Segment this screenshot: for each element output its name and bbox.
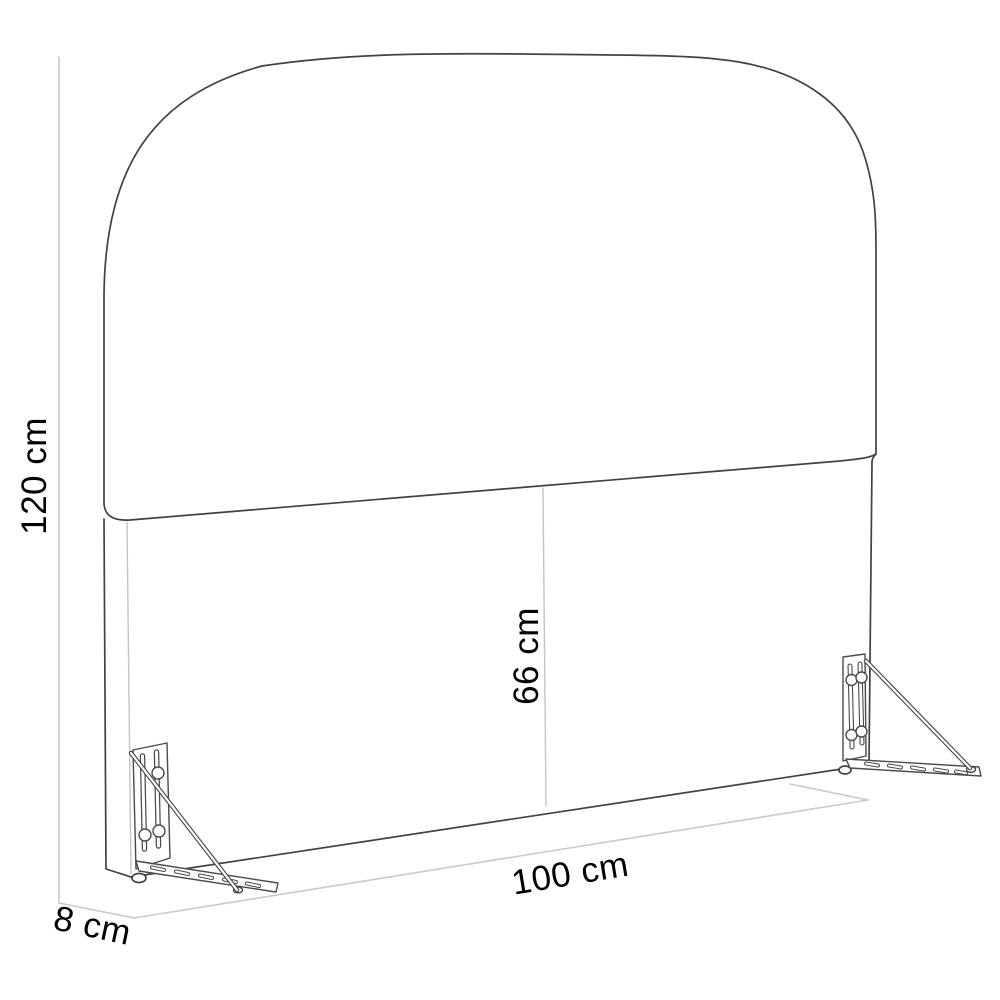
width-dimension-label: 100 cm (509, 845, 632, 903)
headboard-dimension-diagram: 120 cm 66 cm 100 cm 8 cm (0, 0, 1000, 1000)
headboard (104, 54, 876, 883)
panel-height-dimension-label: 66 cm (507, 607, 546, 705)
bracket-diagonal-rod-inner (866, 661, 970, 768)
upper-panel-silhouette (104, 54, 876, 520)
bracket-hole (152, 767, 164, 779)
bracket-hole (846, 675, 857, 686)
bracket-hole (856, 672, 867, 683)
depth-dimension-label: 8 cm (50, 899, 134, 953)
bracket-hole (153, 825, 165, 837)
bracket-hole (856, 726, 867, 737)
width-depth-return-line (790, 784, 868, 800)
height-dimension-label: 120 cm (15, 417, 54, 535)
lower-panel-face (104, 450, 876, 877)
bracket-hole (139, 829, 151, 841)
left-foot (132, 874, 146, 883)
diagram-canvas: 120 cm 66 cm 100 cm 8 cm (0, 0, 1000, 1000)
